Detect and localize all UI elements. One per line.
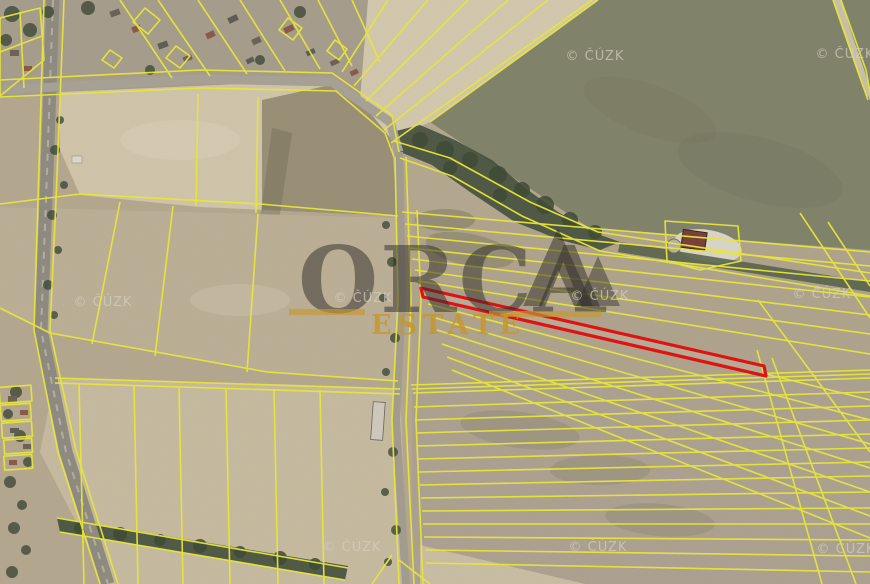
cadastral-map[interactable]: ORCA ESTATE © ČÚZK © ČÚZK © ČÚZK © ČÚZK … (0, 0, 870, 584)
map-canvas: ORCA ESTATE © ČÚZK © ČÚZK © ČÚZK © ČÚZK … (0, 0, 870, 584)
photo-grain-overlay (0, 0, 870, 584)
